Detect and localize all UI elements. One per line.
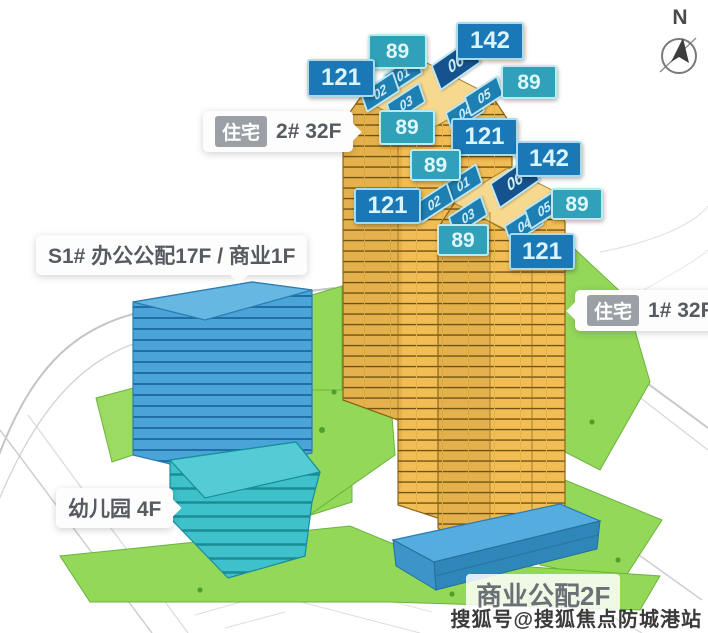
label-tower2-text: 2# 32F [276,120,341,144]
tower1-area-badge-left: 121 [354,188,421,224]
label-tower1: 住宅 1# 32F [575,290,708,331]
label-tower1-text: 1# 32F [648,299,708,323]
compass-icon [654,30,702,78]
site-plan: 01 02 03 04 05 06 01 02 03 04 05 06 89 1… [0,0,708,633]
label-office-text: S1# 办公公配17F / 商业1F [48,240,295,270]
tower2-area-badge-right: 89 [501,65,557,99]
tower2-area-badge-br: 121 [451,118,518,156]
label-tower2-tag: 住宅 [215,116,267,147]
tower2-area-badge-tl: 89 [368,34,427,69]
tower1-area-badge-tl: 89 [410,149,461,181]
label-kindergarten: 幼儿园 4F [56,488,173,528]
tower1-area-badge-br: 121 [509,233,575,270]
tower2-area-badge-bottom: 89 [379,110,435,145]
compass-n-label: N [654,6,706,30]
label-kindergarten-text: 幼儿园 4F [68,493,161,523]
tower2-area-badge-left: 121 [307,59,375,97]
watermark: 搜狐号@搜狐焦点防城港站 [450,603,702,632]
label-office: S1# 办公公配17F / 商业1F [36,235,307,275]
compass-north: N [650,6,706,83]
tower1-area-badge-tr: 142 [516,141,582,177]
tower1-area-badge-right: 89 [551,188,603,220]
label-tower1-tag: 住宅 [587,295,639,326]
tower2-area-badge-tr: 142 [456,22,524,60]
tower1-area-badge-bottom: 89 [437,224,489,256]
label-tower2: 住宅 2# 32F [203,111,353,152]
